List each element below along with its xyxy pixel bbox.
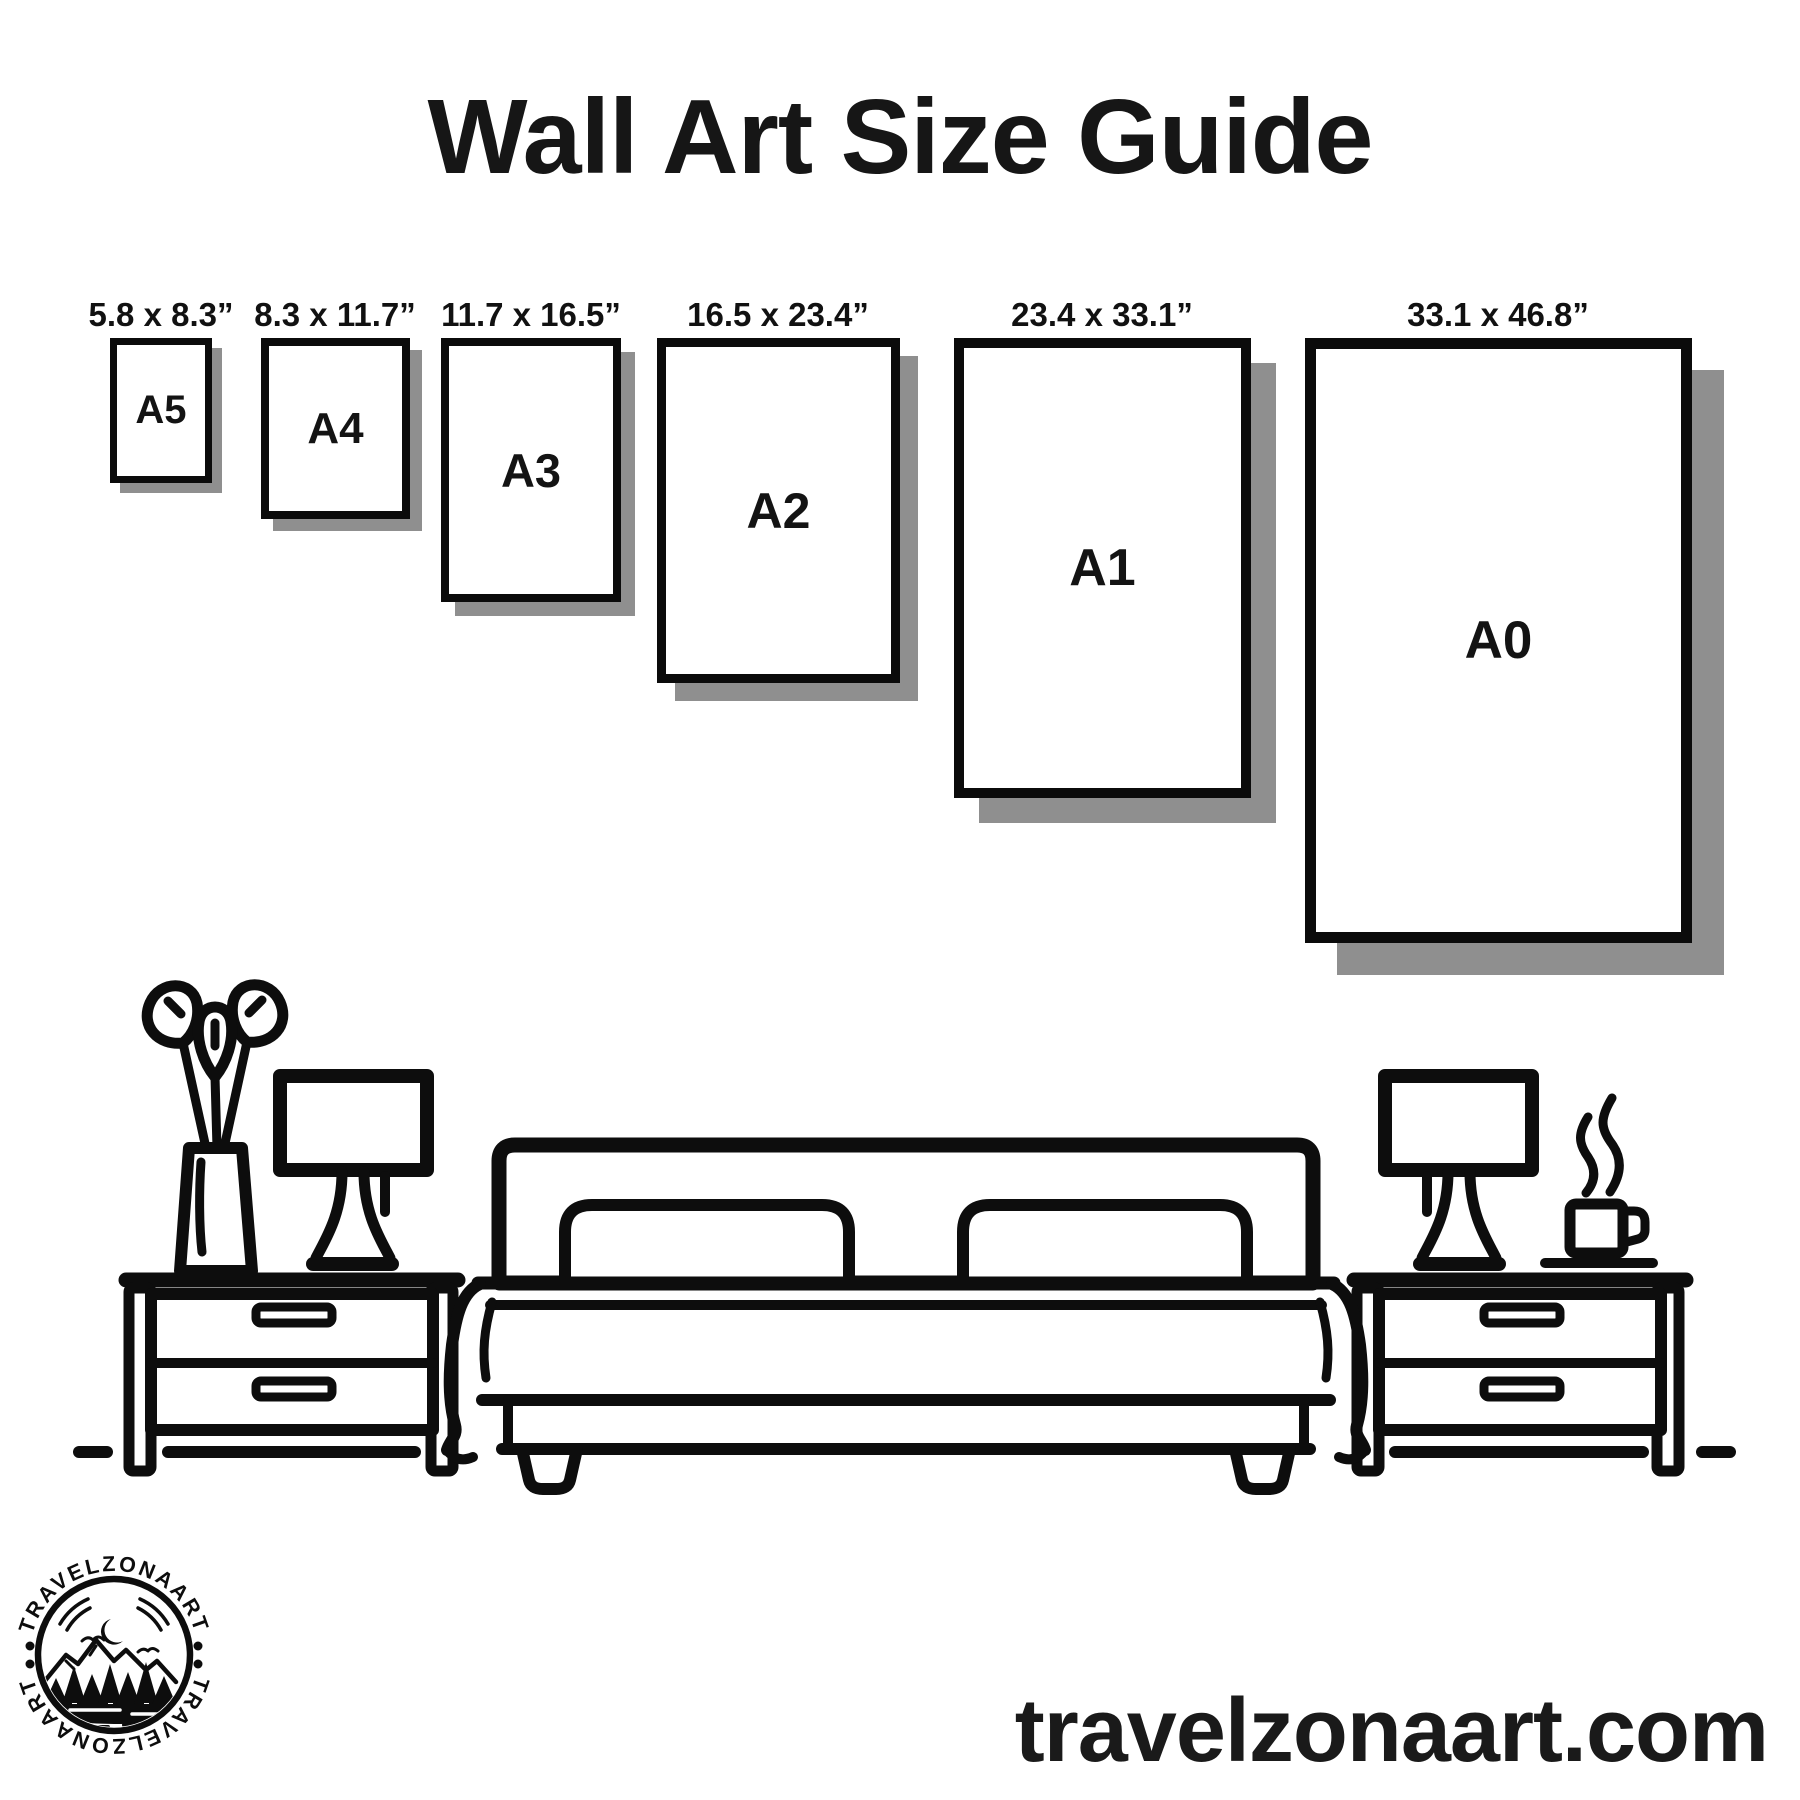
bed-leg-right [1235, 1449, 1290, 1489]
bedroom-scene-illustration: TRAVELZONAART TRAVELZONAART [0, 0, 1800, 1800]
steam-icon [1581, 1098, 1620, 1193]
table-lamp-left-icon [280, 1076, 427, 1264]
bed-icon [447, 1145, 1365, 1489]
bed-leg-left [522, 1449, 577, 1489]
nightstand-right-icon [1354, 1280, 1686, 1471]
sheet-drape-right [1320, 1284, 1365, 1459]
website-url: travelzonaart.com [1015, 1686, 1768, 1776]
table-lamp-right-icon [1385, 1076, 1532, 1264]
pillow-right [963, 1205, 1247, 1283]
brand-logo: TRAVELZONAART TRAVELZONAART [14, 1552, 213, 1758]
vase [180, 1148, 252, 1271]
leaf-right [232, 985, 283, 1043]
nightstand-left-icon [126, 1280, 458, 1471]
sunray-arcs-icon [60, 1599, 168, 1630]
leaf-left [147, 986, 198, 1044]
plant-vase-icon [147, 985, 283, 1271]
sheet-drape-left [447, 1284, 492, 1459]
pillow-left [565, 1205, 849, 1283]
coffee-cup-icon [1545, 1098, 1653, 1263]
wall-art-size-guide-poster: Wall Art Size Guide 5.8 x 8.3” 8.3 x 11.… [0, 0, 1800, 1800]
